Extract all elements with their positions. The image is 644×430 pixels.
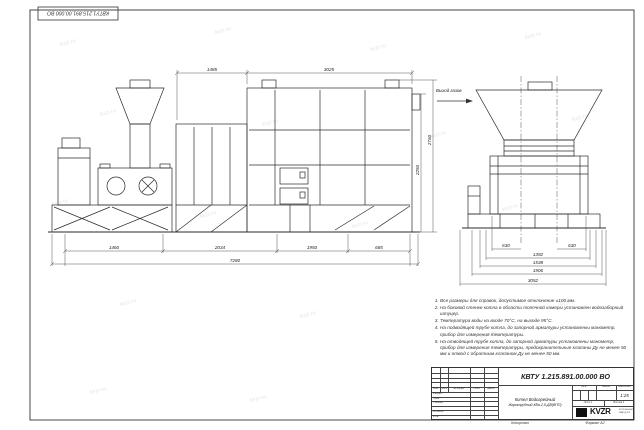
row-nkontr: Н.контр.: [433, 411, 444, 414]
dim-1906: 1906: [533, 268, 544, 273]
note-item: На отводящей трубе котла, до запорной ар…: [440, 339, 631, 357]
technical-notes: Все размеры для справок, допустимое откл…: [431, 298, 631, 358]
product-name-line2: Жаротрубный КВа-2,5-ДВ(ВПП): [508, 403, 561, 407]
side-view-boiler: [462, 76, 606, 244]
title-block: Изм. Лист № докум. Подп. Дата Разраб. Пр…: [431, 367, 634, 420]
logo-text: KVZR: [590, 407, 611, 416]
dim-7280: 7280: [230, 258, 241, 263]
dim-3052: 3052: [528, 278, 539, 283]
gas-outlet-callout: Выход газов: [436, 88, 473, 103]
sheet-total: Листов 1: [604, 402, 633, 405]
drawing-linework: КВТУ1.215.891.00.000 ВО: [0, 0, 644, 430]
col-doc: № докум.: [448, 388, 470, 391]
dim-2034: 2034: [214, 245, 226, 250]
mass-label: Масса: [596, 386, 616, 389]
col-izm: Изм.: [432, 388, 440, 391]
product-name-line1: Котел Водогрейный: [515, 397, 556, 402]
side-view-dimensions: [460, 216, 606, 286]
row-utv: Утв.: [433, 416, 439, 419]
col-data: Дата: [484, 388, 498, 391]
gas-outlet-label: Выход газов: [436, 88, 462, 93]
dim-3025: 3025: [324, 67, 335, 72]
dim-630-right: 630: [568, 243, 576, 248]
row-razrab: Разраб.: [433, 393, 442, 396]
product-name: Котел Водогрейный Жаротрубный КВа-2,5-ДВ…: [498, 385, 572, 419]
dim-1950: 1950: [307, 245, 318, 250]
dim-2250: 2250: [415, 164, 420, 176]
drawing-sheet: kvzr.ru kvzr.ru kvzr.ru kvzr.ru kvzr.ru …: [0, 0, 644, 430]
note-item: На подводящей трубе котла, до запорной а…: [440, 325, 631, 337]
dim-1392: 1392: [533, 252, 544, 257]
company-logo: KVZR КОТЕЛЬНЫЙ ЗАВОД РФ: [572, 406, 633, 419]
arrow-right-icon: [466, 99, 473, 104]
logo-subtext-line2: ЗАВОД РФ: [619, 412, 633, 415]
stamp-code-text: КВТУ1.215.891.00.000 ВО: [47, 10, 109, 16]
note-item: Все размеры для справок, допустимое откл…: [440, 298, 631, 304]
sheet-number: Лист 1: [572, 402, 604, 405]
scale-value: 1:25: [616, 390, 633, 400]
dim-685: 685: [375, 245, 383, 250]
doc-number-stamp: КВТУ1.215.891.00.000 ВО: [38, 7, 118, 20]
logo-mark-icon: [576, 408, 587, 417]
note-item: Температура воды на входе 70°С, на выход…: [440, 318, 631, 324]
col-podp: Подп.: [470, 388, 484, 391]
note-item: На боковой стенке котла в области топочн…: [440, 305, 631, 317]
col-list: Лист: [440, 388, 448, 391]
lit-label: Лит.: [572, 386, 596, 389]
kopiroval-label: Копировал: [485, 421, 555, 425]
row-tkontr: Т.контр.: [433, 402, 443, 405]
dim-1460: 1460: [109, 245, 120, 250]
document-number: КВТУ 1.215.891.00.000 ВО: [498, 368, 633, 385]
main-view-boiler-assembly: [48, 80, 420, 232]
dim-1485: 1485: [207, 67, 218, 72]
scale-label: Масштаб: [616, 386, 633, 389]
dim-630-left: 630: [502, 243, 510, 248]
row-prov: Пров.: [433, 398, 440, 401]
dimension-labels: 1485 3025 1460 2034 1950 685 7280 2250 2…: [109, 67, 576, 283]
dim-1538: 1538: [533, 260, 544, 265]
logo-subtext: КОТЕЛЬНЫЙ ЗАВОД РФ: [619, 409, 633, 414]
dim-2760: 2760: [427, 134, 432, 146]
format-label: Формат А2: [565, 421, 625, 425]
